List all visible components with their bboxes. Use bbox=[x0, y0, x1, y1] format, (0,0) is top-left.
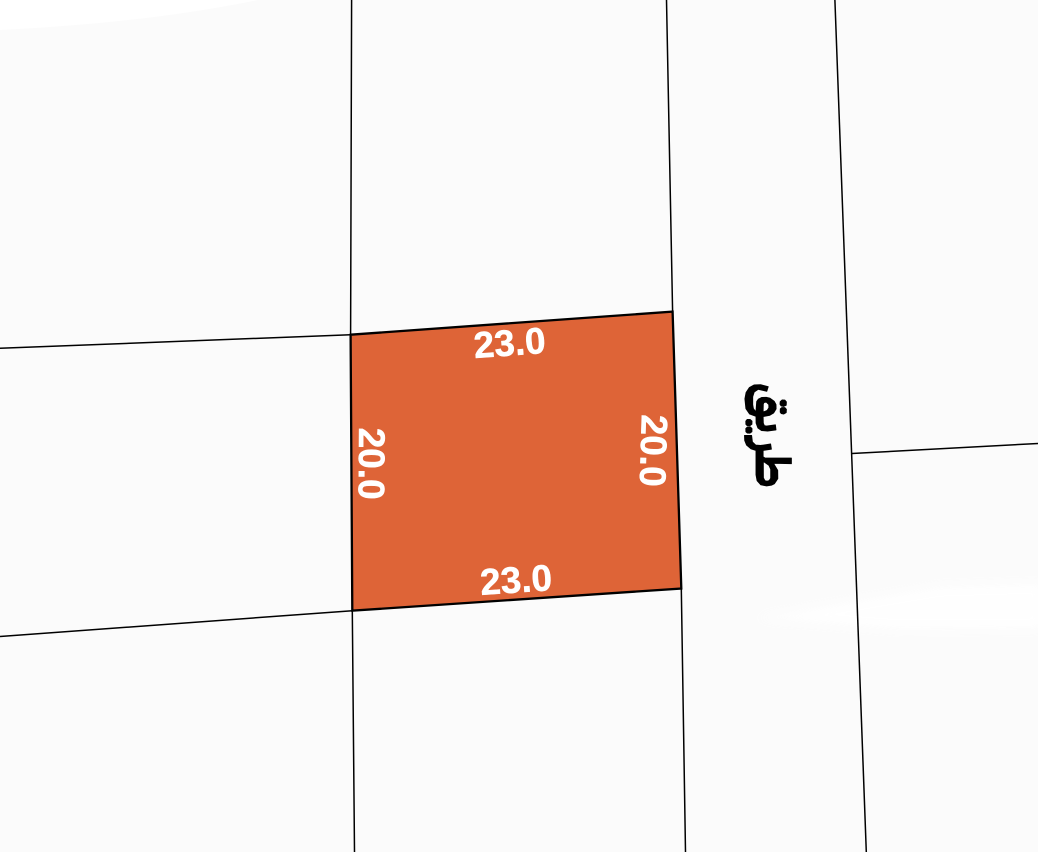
svg-text:23.0: 23.0 bbox=[479, 557, 554, 603]
svg-text:20.0: 20.0 bbox=[351, 428, 393, 500]
svg-text:20.0: 20.0 bbox=[632, 414, 675, 487]
svg-text:23.0: 23.0 bbox=[472, 320, 547, 366]
